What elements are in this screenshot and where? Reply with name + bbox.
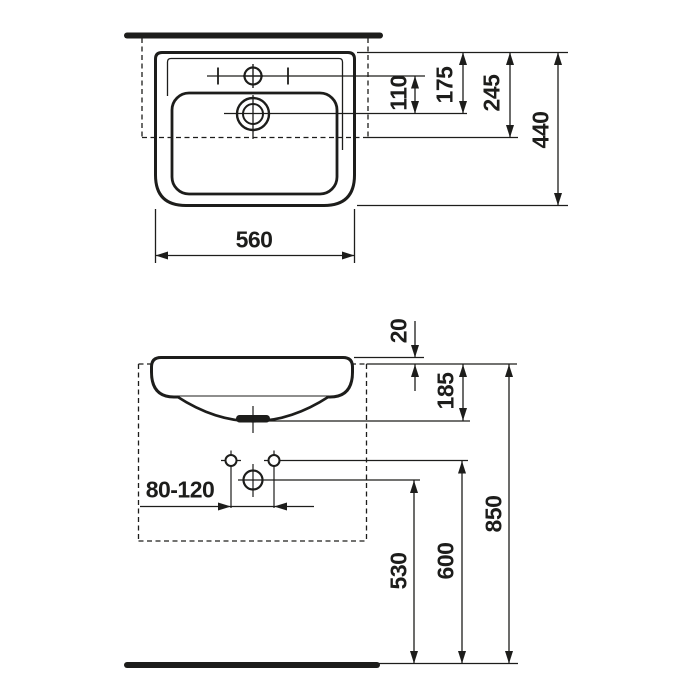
technical-drawing: 560 110 175 245 440 20 185 80-120 530 60…: [0, 0, 700, 700]
dim-label-185: 185: [435, 373, 458, 410]
arrow-80-120-right: [274, 503, 287, 511]
basin-top-view: [127, 36, 568, 264]
arrow-80-120-left: [218, 503, 231, 511]
dim-label-560: 560: [236, 229, 273, 252]
fixing-hole-right: [269, 455, 280, 466]
dim-label-530: 530: [388, 553, 411, 590]
drawing-canvas: [0, 0, 700, 700]
dim-label-245: 245: [481, 75, 504, 112]
dim-label-20: 20: [388, 319, 411, 344]
basin-rim-silhouette: [152, 358, 353, 398]
dim-label-600: 600: [435, 543, 458, 580]
dim-label-175: 175: [434, 67, 457, 104]
basin-bowl-opening: [172, 93, 337, 194]
dim-label-80-120: 80-120: [146, 479, 215, 502]
dim-label-850: 850: [483, 496, 506, 533]
dim-label-440: 440: [530, 112, 553, 149]
dim-label-110: 110: [388, 75, 411, 111]
fixing-hole-left: [226, 455, 237, 466]
